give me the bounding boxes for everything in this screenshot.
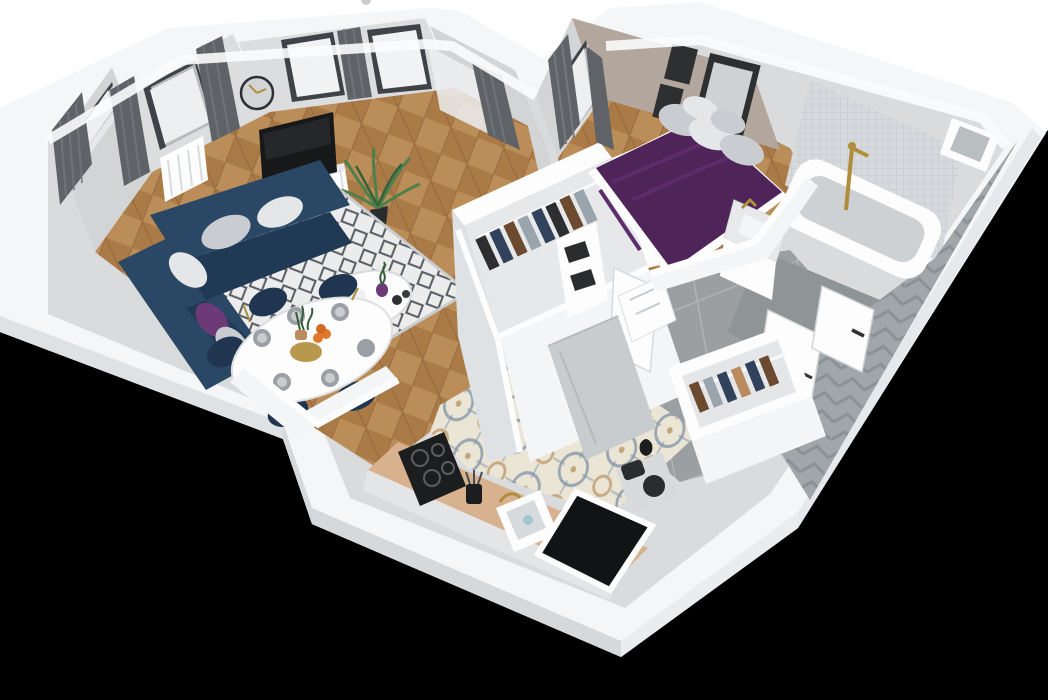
coffee-machine-dial [643, 475, 665, 497]
gold-tray [290, 342, 322, 362]
candle1 [392, 295, 402, 305]
orange-3 [316, 324, 326, 334]
utensil-cup [466, 484, 482, 504]
pineapple [295, 330, 307, 340]
vase [376, 283, 388, 297]
shower-head [848, 142, 856, 150]
floorplan-svg [0, 0, 1048, 700]
floorplan-render [0, 0, 1048, 700]
wall-clock [241, 77, 273, 109]
candle2 [402, 290, 410, 298]
sink-drain [523, 515, 533, 525]
